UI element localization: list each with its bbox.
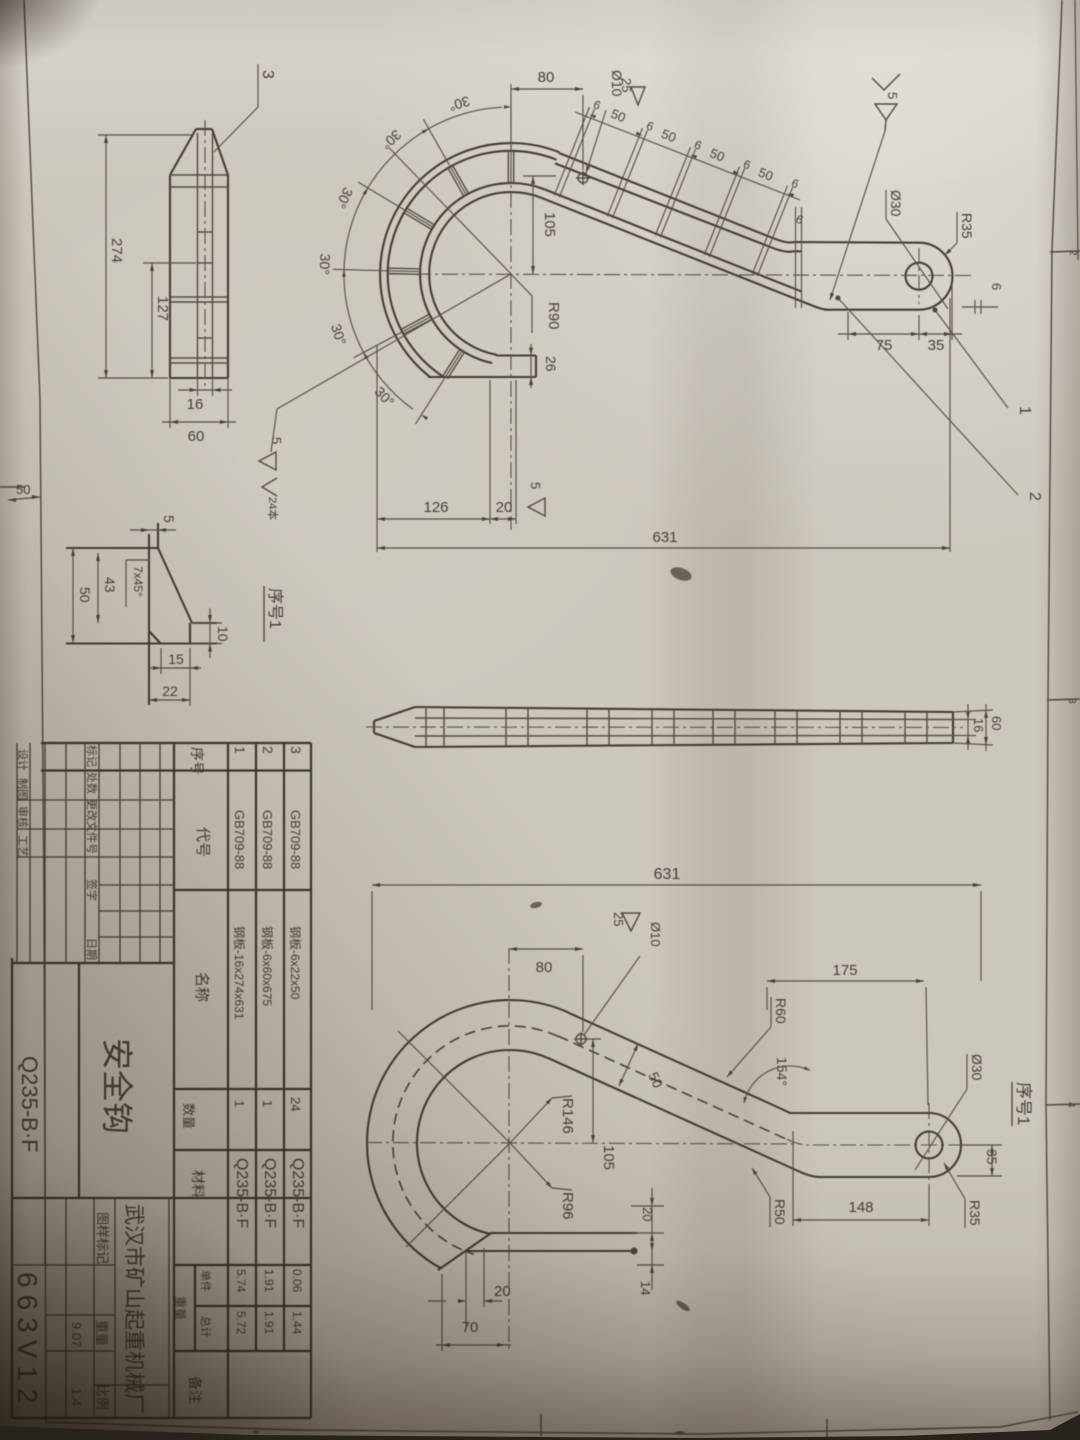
svg-text:24本: 24本 — [266, 497, 280, 520]
svg-text:Ø30: Ø30 — [888, 190, 904, 217]
svg-text:重量: 重量 — [94, 1320, 109, 1346]
svg-text:代号: 代号 — [194, 827, 211, 857]
svg-text:50: 50 — [756, 165, 775, 184]
svg-text:175: 175 — [832, 962, 857, 979]
svg-text:序号1: 序号1 — [266, 588, 284, 629]
svg-text:6: 6 — [989, 283, 1004, 290]
svg-text:50: 50 — [659, 126, 678, 145]
svg-text:16: 16 — [971, 718, 986, 732]
svg-text:6: 6 — [741, 157, 753, 173]
svg-text:631: 631 — [652, 529, 677, 546]
svg-text:Q235-B·F: Q235-B·F — [233, 1158, 250, 1228]
svg-text:标记: 标记 — [85, 745, 99, 767]
svg-text:3: 3 — [1066, 698, 1077, 704]
svg-text:5.72: 5.72 — [234, 1311, 248, 1335]
svg-text:R90: R90 — [545, 302, 562, 330]
svg-text:105: 105 — [541, 212, 558, 237]
svg-text:比例: 比例 — [95, 1384, 110, 1410]
svg-text:30°: 30° — [328, 322, 350, 347]
svg-text:1: 1 — [1016, 406, 1033, 415]
svg-text:6: 6 — [591, 97, 603, 113]
svg-text:Ø10: Ø10 — [648, 922, 663, 947]
svg-text:2: 2 — [1067, 250, 1078, 256]
svg-text:9.07: 9.07 — [69, 1322, 84, 1347]
svg-text:20: 20 — [640, 1207, 655, 1221]
svg-text:钢板-6x60x675: 钢板-6x60x675 — [260, 926, 274, 1006]
svg-text:6: 6 — [692, 138, 704, 154]
svg-text:签字: 签字 — [85, 879, 99, 901]
svg-text:总计: 总计 — [199, 1316, 213, 1338]
svg-text:处数: 处数 — [85, 772, 98, 794]
svg-text:75: 75 — [876, 337, 893, 354]
svg-text:制图: 制图 — [16, 778, 29, 800]
svg-text:7x45°: 7x45° — [131, 566, 145, 597]
svg-text:5: 5 — [528, 482, 543, 489]
svg-text:6: 6 — [644, 118, 656, 134]
svg-text:3: 3 — [288, 746, 304, 754]
svg-text:设计: 设计 — [16, 749, 29, 771]
svg-text:43: 43 — [102, 577, 118, 593]
svg-text:50: 50 — [77, 587, 93, 603]
svg-text:20: 20 — [494, 1283, 511, 1300]
svg-text:5: 5 — [885, 92, 900, 99]
svg-text:30°: 30° — [447, 93, 472, 114]
svg-text:GB709-88: GB709-88 — [288, 810, 303, 869]
svg-text:126: 126 — [423, 499, 448, 516]
svg-text:274: 274 — [108, 238, 125, 263]
svg-text:Ø30: Ø30 — [969, 1054, 985, 1081]
svg-text:60: 60 — [989, 716, 1004, 730]
svg-text:1.91: 1.91 — [262, 1269, 276, 1293]
svg-text:25: 25 — [611, 912, 626, 926]
svg-text:15: 15 — [168, 651, 184, 667]
svg-text:50: 50 — [708, 145, 727, 164]
svg-text:GB709-88: GB709-88 — [232, 810, 247, 869]
svg-text:1.44: 1.44 — [290, 1311, 304, 1335]
svg-text:2: 2 — [260, 746, 276, 754]
svg-text:1.91: 1.91 — [262, 1311, 276, 1335]
svg-text:材料: 材料 — [190, 1170, 206, 1198]
svg-text:GB709-88: GB709-88 — [260, 810, 275, 869]
svg-text:R35: R35 — [967, 1200, 983, 1226]
svg-text:R50: R50 — [772, 1199, 788, 1225]
svg-text:序号1: 序号1 — [1014, 1082, 1033, 1125]
svg-text:35: 35 — [984, 1149, 1000, 1165]
svg-text:80: 80 — [538, 69, 555, 86]
svg-text:序号: 序号 — [189, 747, 205, 775]
svg-text:重量: 重量 — [173, 1296, 187, 1320]
svg-text:30°: 30° — [333, 185, 356, 211]
svg-text:更改文件号: 更改文件号 — [85, 799, 99, 854]
svg-text:日期: 日期 — [85, 938, 98, 960]
svg-text:70: 70 — [462, 1319, 479, 1336]
svg-text:5: 5 — [161, 515, 177, 523]
svg-text:2: 2 — [1026, 492, 1043, 501]
svg-text:3: 3 — [259, 70, 276, 79]
svg-text:4: 4 — [1065, 1102, 1076, 1108]
svg-text:148: 148 — [848, 1199, 873, 1216]
svg-text:5.74: 5.74 — [234, 1269, 248, 1293]
svg-text:备注: 备注 — [187, 1376, 203, 1404]
svg-text:127: 127 — [154, 296, 171, 321]
svg-text:30°: 30° — [372, 383, 398, 409]
svg-text:60: 60 — [188, 428, 205, 445]
svg-text:105: 105 — [600, 1145, 617, 1170]
svg-text:钢板-16x274x631: 钢板-16x274x631 — [232, 926, 246, 1020]
svg-text:26: 26 — [543, 356, 559, 372]
svg-text:10: 10 — [215, 626, 231, 642]
svg-text:Q235-B·F: Q235-B·F — [17, 1056, 42, 1153]
svg-text:50: 50 — [16, 482, 30, 497]
svg-text:图样标记: 图样标记 — [95, 1212, 110, 1264]
svg-text:数量: 数量 — [181, 1103, 196, 1129]
svg-text:钢板-6x22x50: 钢板-6x22x50 — [288, 926, 302, 1000]
svg-text:24: 24 — [288, 1097, 303, 1111]
svg-text:663V12: 663V12 — [12, 1272, 43, 1411]
svg-text:154°: 154° — [774, 1057, 790, 1086]
svg-text:30°: 30° — [316, 253, 333, 275]
svg-text:1.4: 1.4 — [69, 1388, 84, 1406]
svg-text:武汉市矿山起重机械厂: 武汉市矿山起重机械厂 — [122, 1204, 145, 1414]
svg-text:单件: 单件 — [199, 1270, 212, 1292]
svg-text:0.06: 0.06 — [290, 1269, 304, 1293]
svg-text:50: 50 — [645, 1070, 666, 1091]
svg-text:22: 22 — [162, 683, 178, 699]
svg-text:R96: R96 — [559, 1192, 576, 1220]
svg-text:1: 1 — [232, 746, 248, 754]
svg-text:14: 14 — [638, 1281, 653, 1295]
svg-text:631: 631 — [654, 866, 681, 883]
svg-text:50: 50 — [609, 106, 628, 125]
svg-text:审核: 审核 — [16, 806, 30, 828]
svg-text:工艺: 工艺 — [16, 835, 29, 857]
svg-text:安全钩: 安全钩 — [99, 1038, 135, 1134]
svg-text:35: 35 — [928, 337, 945, 354]
svg-text:Q235-B·F: Q235-B·F — [289, 1158, 306, 1228]
svg-text:R146: R146 — [559, 1098, 576, 1134]
svg-text:1: 1 — [260, 1100, 275, 1107]
svg-text:Q235-B·F: Q235-B·F — [261, 1158, 278, 1228]
svg-text:R60: R60 — [773, 998, 789, 1024]
svg-text:R35: R35 — [959, 213, 975, 239]
svg-text:名称: 名称 — [193, 972, 210, 1002]
svg-text:16: 16 — [187, 396, 204, 413]
svg-text:5: 5 — [269, 437, 284, 444]
svg-text:80: 80 — [536, 959, 553, 976]
svg-text:1: 1 — [232, 1100, 247, 1107]
svg-text:20: 20 — [496, 499, 513, 516]
svg-text:6: 6 — [789, 176, 801, 192]
